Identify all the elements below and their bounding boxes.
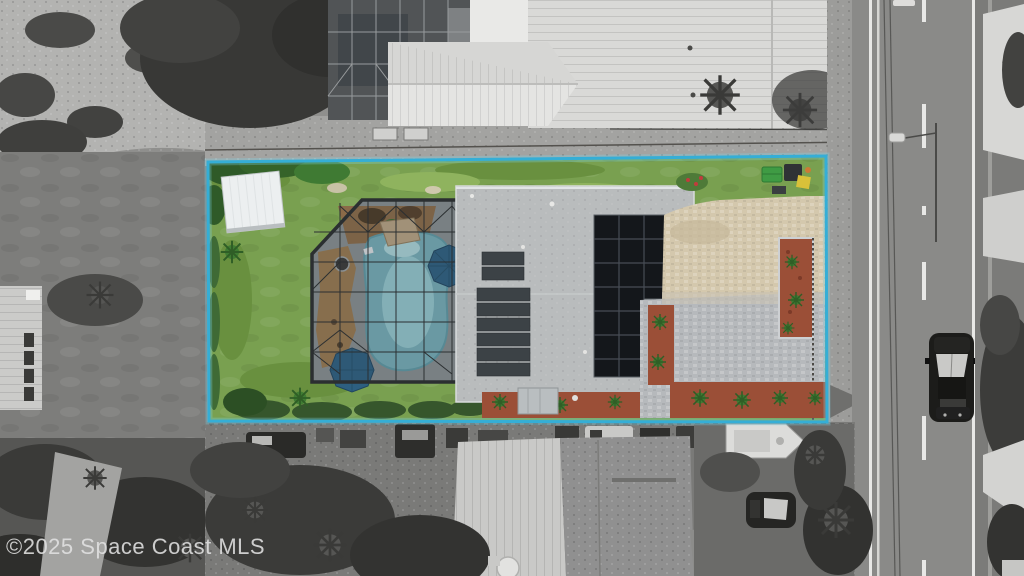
black-vehicle-on-road (925, 333, 978, 422)
mulch-bed-east (779, 238, 813, 338)
rear-panel (518, 388, 558, 414)
neighbor-house-west-roof (0, 286, 42, 410)
neighbor-lot-south (190, 422, 873, 576)
ac-unit (373, 128, 397, 140)
parked-suv (746, 492, 796, 528)
flower-shrub (676, 173, 708, 191)
palm-tree-gray (700, 75, 740, 115)
neighbor-house-north-roof-gabled (388, 42, 578, 126)
yellow-bag (796, 175, 811, 189)
white-vehicle-top (893, 0, 915, 6)
pool-solar-panels (477, 252, 530, 376)
east-parcels (975, 0, 1024, 576)
pool-screen-enclosure (312, 200, 472, 392)
ac-unit (404, 128, 428, 140)
road (852, 0, 993, 576)
palm-tree (221, 241, 243, 263)
round-table (497, 557, 519, 576)
road-edge-line-west (869, 0, 872, 576)
subject-property (202, 150, 830, 425)
road-edge-line-east (972, 0, 975, 576)
aerial-photo-canvas: ©2025 Space Coast MLS (0, 0, 1024, 576)
driveway-east-2 (983, 190, 1024, 263)
mulch-bed-center (648, 305, 674, 385)
storage-shed (221, 171, 285, 233)
neighbor-lot-north (120, 0, 940, 166)
watermark-text: ©2025 Space Coast MLS (6, 534, 265, 559)
